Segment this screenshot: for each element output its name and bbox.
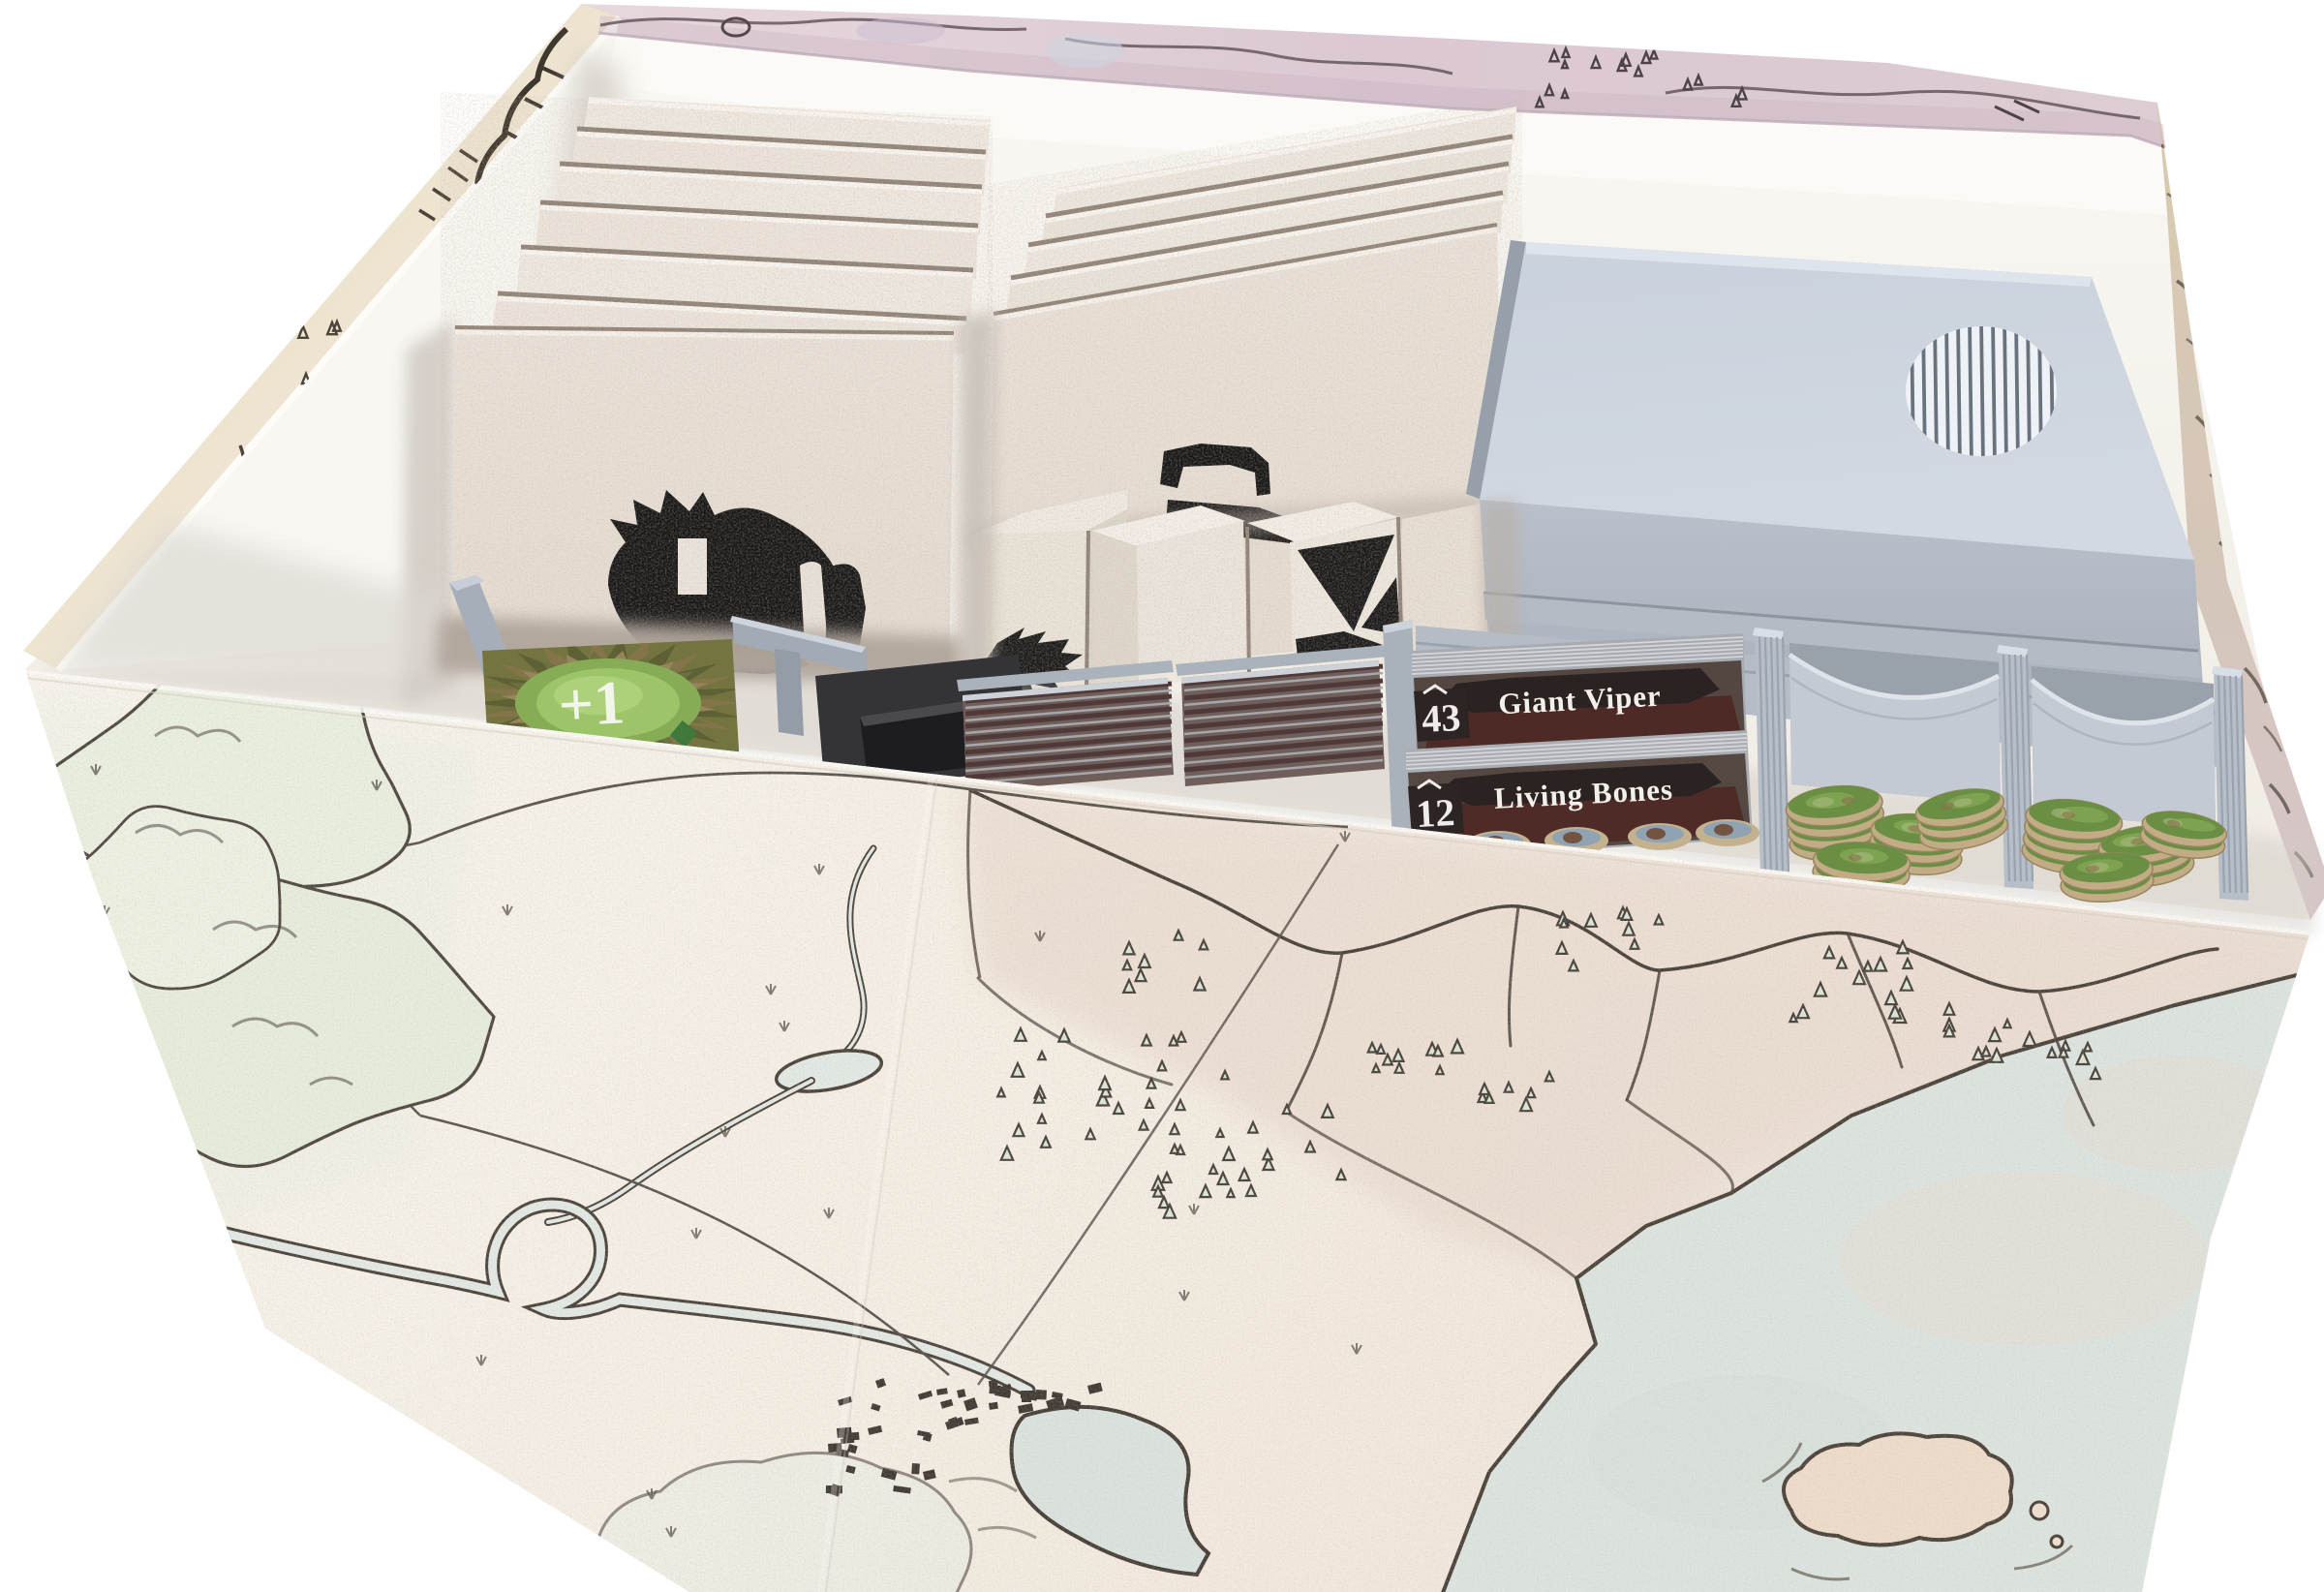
svg-text:43: 43 bbox=[1421, 695, 1461, 741]
svg-text:+1: +1 bbox=[557, 667, 627, 739]
svg-text:12: 12 bbox=[1415, 790, 1455, 836]
